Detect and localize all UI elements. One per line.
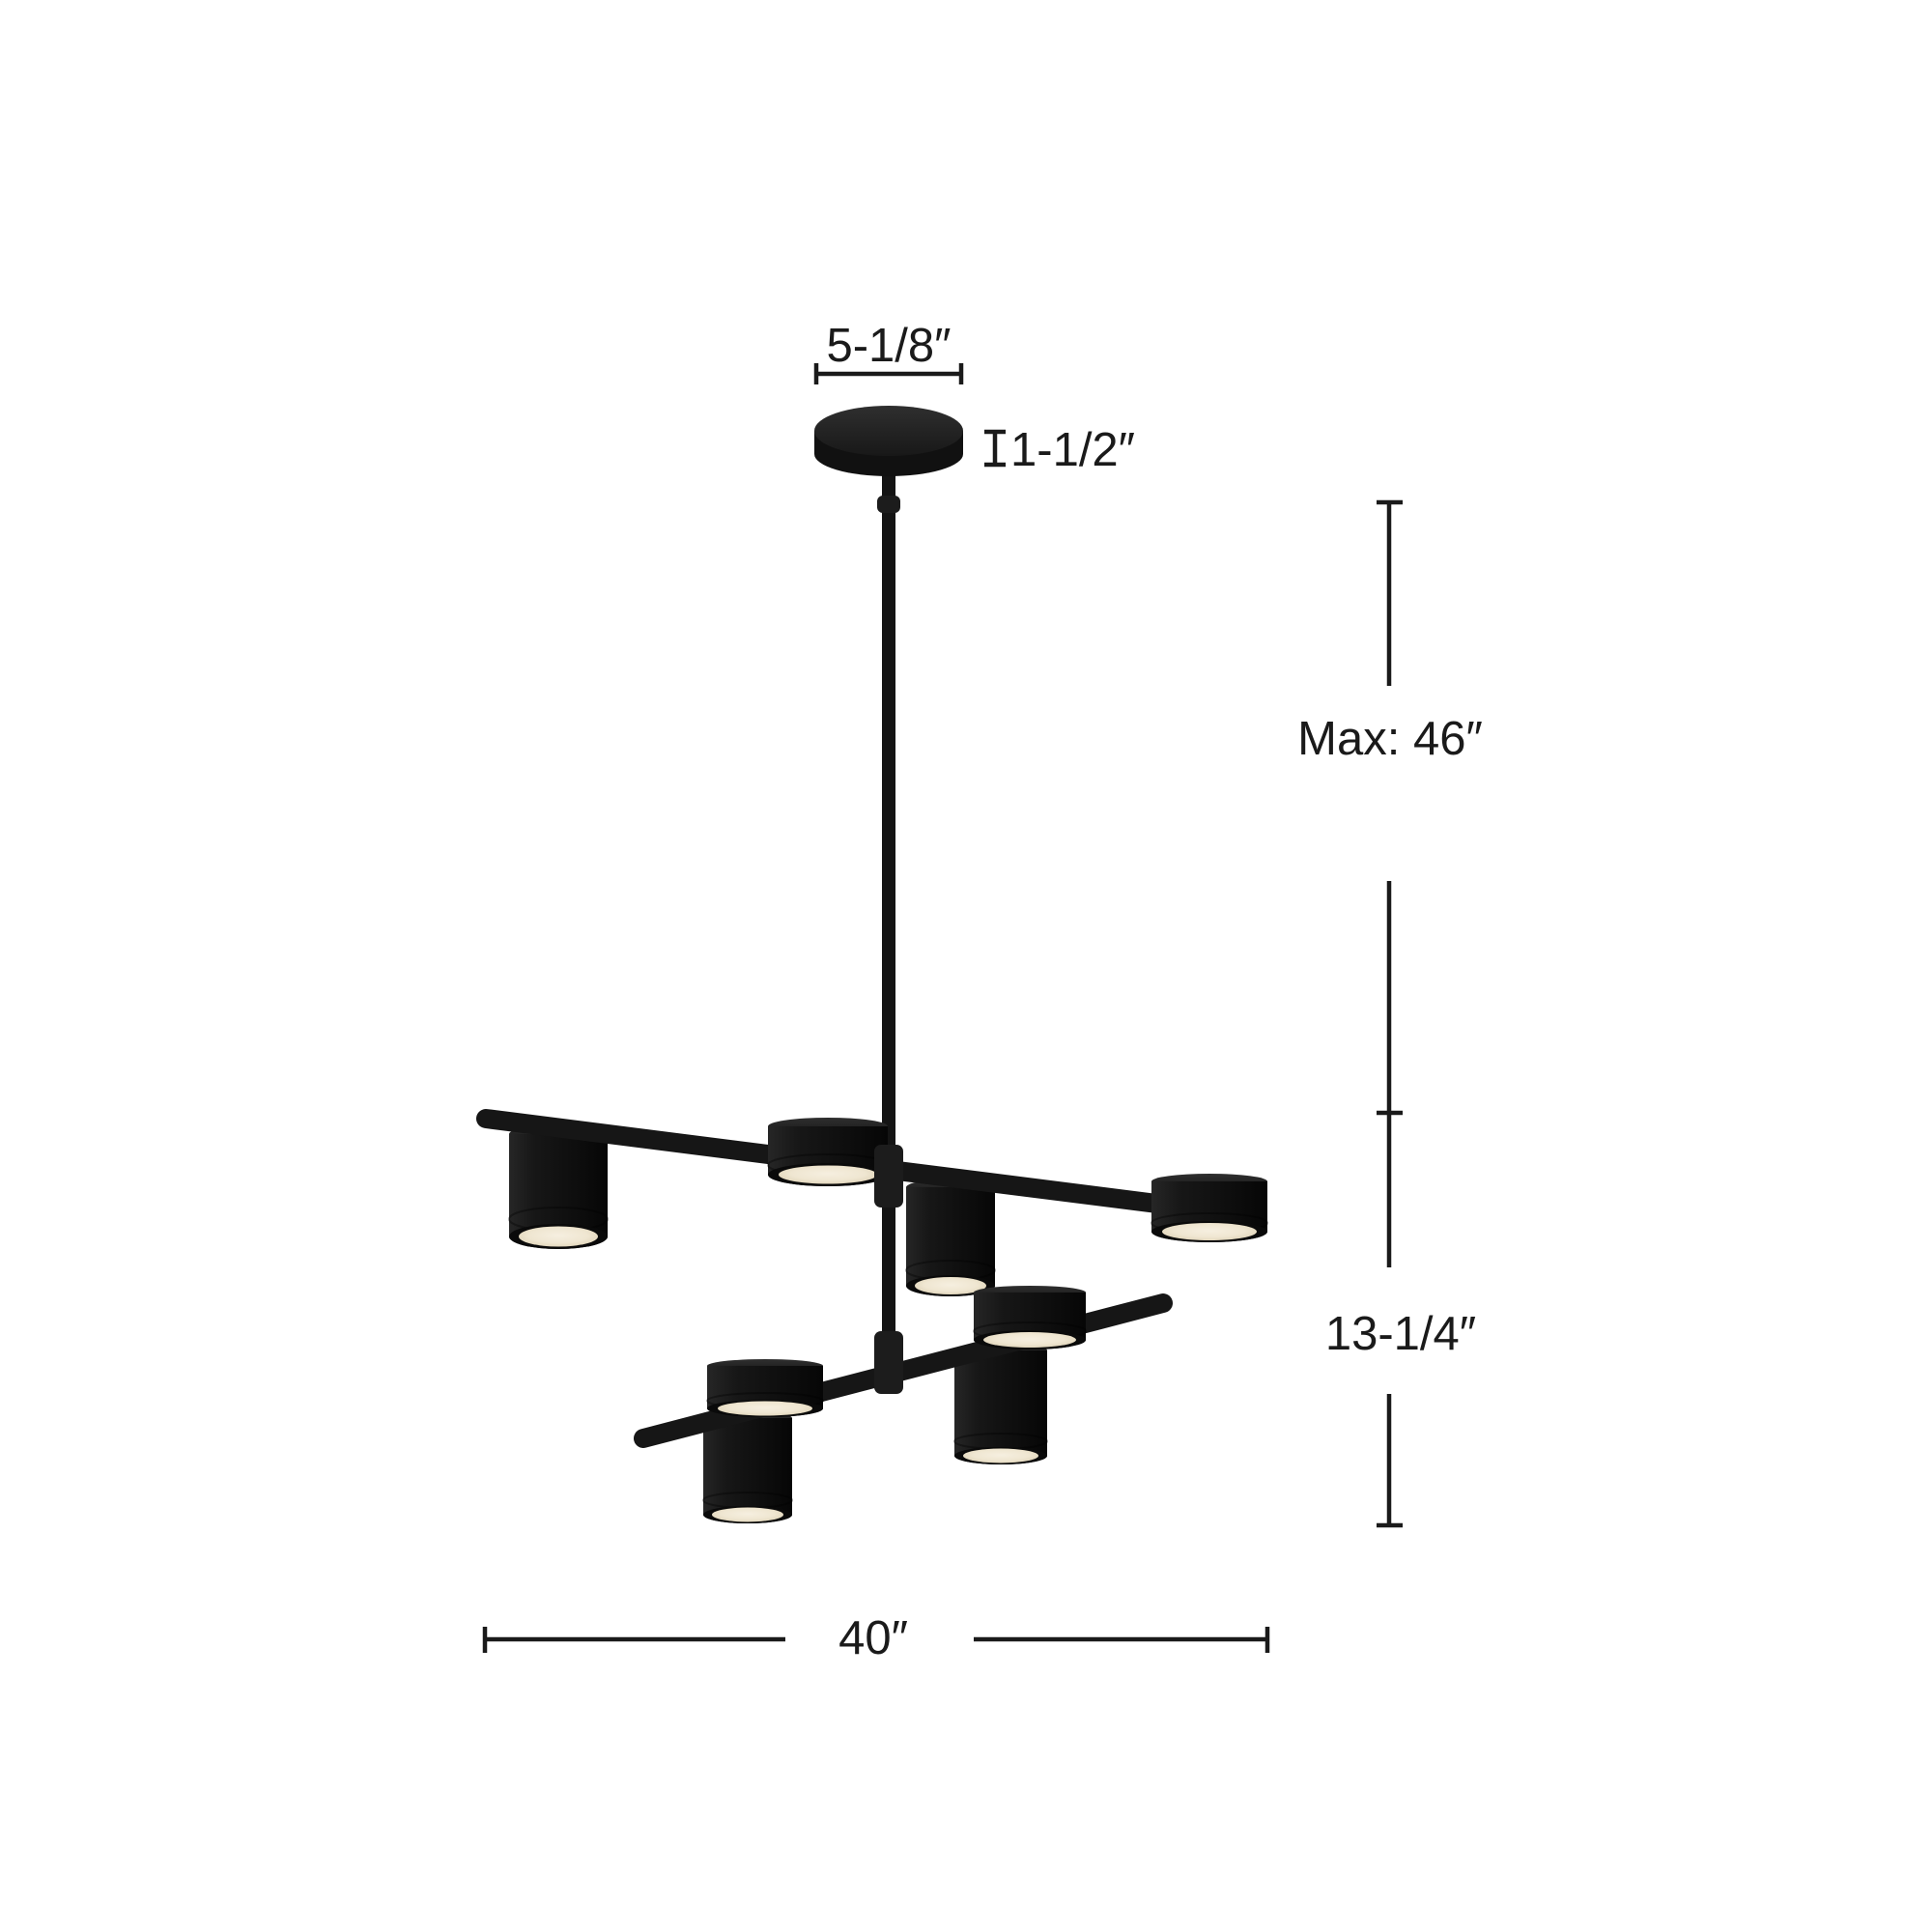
upper-center-cylinder-light bbox=[906, 1179, 995, 1296]
canopy-height-label: 1-1/2″ bbox=[1010, 424, 1135, 476]
lens bbox=[963, 1449, 1038, 1463]
lens bbox=[712, 1508, 783, 1522]
dimension-canopy-width: 5-1/8″ bbox=[816, 320, 961, 384]
chandelier-fixture bbox=[486, 406, 1267, 1523]
lower-left-puck-light bbox=[707, 1359, 823, 1417]
lens bbox=[983, 1332, 1076, 1348]
lens bbox=[1162, 1223, 1257, 1240]
canopy-width-label: 5-1/8″ bbox=[826, 320, 951, 372]
fixture-height-label: 13-1/4″ bbox=[1325, 1308, 1476, 1360]
chandelier-dimension-drawing: 5-1/8″ 1-1/2″ Max: 46″ 13-1/4″ 40″ bbox=[0, 0, 1932, 1932]
upper-hub bbox=[874, 1145, 903, 1207]
ceiling-canopy bbox=[814, 406, 963, 476]
dimension-canopy-height: 1-1/2″ bbox=[984, 424, 1135, 476]
stem-coupler bbox=[877, 496, 900, 513]
lens bbox=[718, 1402, 812, 1416]
lens bbox=[779, 1166, 877, 1184]
fixture-width-label: 40″ bbox=[838, 1612, 908, 1664]
upper-center-puck-light bbox=[768, 1118, 888, 1186]
dimension-max-drop: Max: 46″ bbox=[1297, 502, 1483, 1113]
upper-left-cylinder-light bbox=[509, 1125, 608, 1249]
stem-rod bbox=[882, 440, 895, 1394]
diagram-canvas: 5-1/8″ 1-1/2″ Max: 46″ 13-1/4″ 40″ bbox=[0, 0, 1932, 1932]
upper-right-puck-light bbox=[1151, 1174, 1267, 1242]
dimension-fixture-width: 40″ bbox=[485, 1612, 1267, 1664]
lens bbox=[519, 1227, 598, 1247]
lower-hub bbox=[874, 1331, 903, 1394]
lower-center-puck-light bbox=[974, 1286, 1086, 1350]
dimension-fixture-height: 13-1/4″ bbox=[1325, 1113, 1476, 1525]
canopy-top bbox=[814, 406, 963, 456]
max-drop-label: Max: 46″ bbox=[1297, 713, 1483, 765]
